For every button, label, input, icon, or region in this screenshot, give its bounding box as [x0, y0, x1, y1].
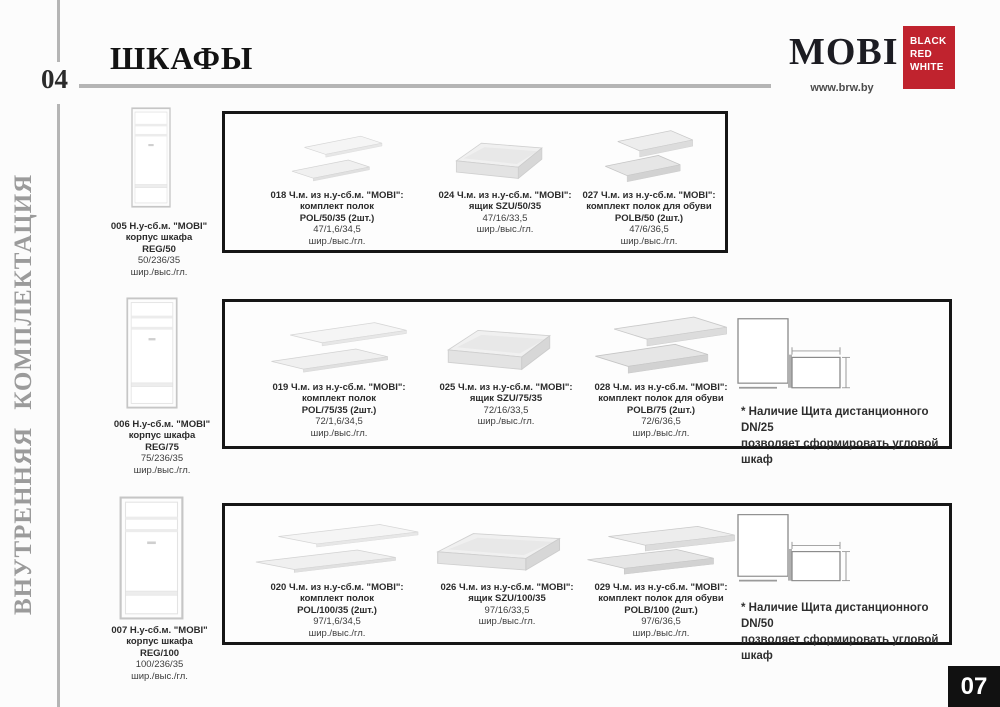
item-code: 025 Ч.м. из н.у-сб.м. "MOBI": — [439, 382, 572, 393]
item-026: 026 Ч.м. из н.у-сб.м. "MOBI": ящик SZU/1… — [421, 510, 593, 628]
item-code: 006 Н.у-сб.м. "MOBI" — [102, 419, 222, 430]
item-model: REG/75 — [102, 442, 222, 453]
item-model: POLB/50 (2шт.) — [582, 213, 715, 224]
corner-note-line2: позволяет сформировать угловой шкаф — [741, 436, 951, 468]
wardrobe-figure-reg75 — [126, 297, 178, 409]
item-dims-label: шир./выс./гл. — [270, 628, 403, 639]
item-024: 024 Ч.м. из н.у-сб.м. "MOBI": ящик SZU/5… — [421, 118, 589, 236]
wardrobe-figure-reg100 — [119, 496, 184, 620]
corner-note: * Наличие Щита дистанционного DN/50 позв… — [741, 600, 961, 664]
accessory-group-reg100: 020 Ч.м. из н.у-сб.м. "MOBI": комплект п… — [222, 503, 952, 645]
drawer-icon — [436, 310, 576, 380]
item-model: POL/75/35 (2шт.) — [272, 405, 405, 416]
item-model: REG/50 — [100, 244, 218, 255]
item-name: комплект полок — [270, 201, 403, 212]
item-dims: 50/236/35 — [100, 255, 218, 266]
item-dims: 47/16/33,5 — [438, 213, 571, 224]
page-number-left: 04 — [41, 64, 68, 95]
item-dims: 75/236/35 — [102, 453, 222, 464]
item-model: POLB/100 (2шт.) — [594, 605, 727, 616]
sidebar-vertical-label: ВНУТРЕННЯЯ КОМПЛЕКТАЦИЯ — [10, 165, 38, 615]
item-029: 029 Ч.м. из н.у-сб.м. "MOBI": комплект п… — [577, 510, 745, 639]
item-code: 027 Ч.м. из н.у-сб.м. "MOBI": — [582, 190, 715, 201]
item-dims-label: шир./выс./гл. — [438, 224, 571, 235]
brw-logo-line: WHITE — [910, 61, 955, 74]
left-rule-top — [57, 0, 60, 62]
item-019: 019 Ч.м. из н.у-сб.м. "MOBI": комплект п… — [253, 310, 425, 439]
accessory-group-reg75: 019 Ч.м. из н.у-сб.м. "MOBI": комплект п… — [222, 299, 952, 449]
item-dims-label: шир./выс./гл. — [100, 267, 218, 278]
item-model: REG/100 — [97, 648, 222, 659]
corner-note-line1: * Наличие Щита дистанционного DN/25 — [741, 404, 951, 436]
wardrobe-figure-reg50 — [131, 107, 171, 208]
catalog-page: 04 ШКАФЫ ВНУТРЕННЯЯ КОМПЛЕКТАЦИЯ MOBI ww… — [0, 0, 1000, 707]
item-dims: 47/1,6/34,5 — [270, 224, 403, 235]
item-dims-label: шир./выс./гл. — [594, 428, 727, 439]
item-code: 007 Н.у-сб.м. "MOBI" — [97, 625, 222, 636]
shelves-icon — [264, 310, 414, 380]
wardrobe-label-006: 006 Н.у-сб.м. "MOBI" корпус шкафа REG/75… — [102, 419, 222, 476]
item-label: 024 Ч.м. из н.у-сб.м. "MOBI": ящик SZU/5… — [438, 190, 571, 236]
item-code: 029 Ч.м. из н.у-сб.м. "MOBI": — [594, 582, 727, 593]
item-dims-label: шир./выс./гл. — [594, 628, 727, 639]
item-label: 018 Ч.м. из н.у-сб.м. "MOBI": комплект п… — [270, 190, 403, 247]
left-rule-bottom — [57, 104, 60, 707]
brw-logo-line: RED — [910, 48, 955, 61]
item-name: комплект полок для обуви — [582, 201, 715, 212]
corner-wardrobe-diagram — [733, 512, 873, 600]
item-025: 025 Ч.м. из н.у-сб.м. "MOBI": ящик SZU/7… — [421, 310, 591, 428]
corner-wardrobe-diagram — [733, 316, 873, 408]
item-dims: 72/16/33,5 — [439, 405, 572, 416]
shoe-shelves-icon — [599, 118, 699, 188]
corner-note-line2: позволяет сформировать угловой шкаф — [741, 632, 961, 664]
shoe-shelves-icon — [586, 310, 736, 380]
item-dims-label: шир./выс./гл. — [272, 428, 405, 439]
item-name: корпус шкафа — [100, 232, 218, 243]
item-code: 005 Н.у-сб.м. "MOBI" — [100, 221, 218, 232]
item-label: 026 Ч.м. из н.у-сб.м. "MOBI": ящик SZU/1… — [440, 582, 573, 628]
item-label: 029 Ч.м. из н.у-сб.м. "MOBI": комплект п… — [594, 582, 727, 639]
brand-website: www.brw.by — [789, 82, 895, 94]
brw-logo: BLACK RED WHITE — [903, 26, 955, 89]
item-code: 028 Ч.м. из н.у-сб.м. "MOBI": — [594, 382, 727, 393]
item-dims: 97/1,6/34,5 — [270, 616, 403, 627]
item-dims: 72/6/36,5 — [594, 416, 727, 427]
item-name: комплект полок — [272, 393, 405, 404]
item-name: комплект полок для обуви — [594, 593, 727, 604]
item-name: комплект полок — [270, 593, 403, 604]
item-name: комплект полок для обуви — [594, 393, 727, 404]
item-dims: 97/16/33,5 — [440, 605, 573, 616]
item-code: 019 Ч.м. из н.у-сб.м. "MOBI": — [272, 382, 405, 393]
item-028: 028 Ч.м. из н.у-сб.м. "MOBI": комплект п… — [577, 310, 745, 439]
item-name: ящик SZU/75/35 — [439, 393, 572, 404]
page-number-right: 07 — [948, 666, 1000, 707]
item-label: 027 Ч.м. из н.у-сб.м. "MOBI": комплект п… — [582, 190, 715, 247]
item-label: 028 Ч.м. из н.у-сб.м. "MOBI": комплект п… — [594, 382, 727, 439]
corner-note-line1: * Наличие Щита дистанционного DN/50 — [741, 600, 961, 632]
accessory-group-reg50: 018 Ч.м. из н.у-сб.м. "MOBI": комплект п… — [222, 111, 728, 253]
item-dims-label: шир./выс./гл. — [439, 416, 572, 427]
page-title: ШКАФЫ — [110, 40, 253, 77]
item-dims: 72/1,6/34,5 — [272, 416, 405, 427]
corner-note: * Наличие Щита дистанционного DN/25 позв… — [741, 404, 951, 468]
item-code: 026 Ч.м. из н.у-сб.м. "MOBI": — [440, 582, 573, 593]
item-code: 020 Ч.м. из н.у-сб.м. "MOBI": — [270, 582, 403, 593]
item-dims: 97/6/36,5 — [594, 616, 727, 627]
item-model: POL/50/35 (2шт.) — [270, 213, 403, 224]
item-label: 020 Ч.м. из н.у-сб.м. "MOBI": комплект п… — [270, 582, 403, 639]
item-027: 027 Ч.м. из н.у-сб.м. "MOBI": комплект п… — [573, 118, 725, 247]
item-dims: 47/6/36,5 — [582, 224, 715, 235]
item-dims-label: шир./выс./гл. — [582, 236, 715, 247]
brw-logo-line: BLACK — [910, 35, 955, 48]
shelves-icon — [247, 510, 427, 580]
item-model: POL/100/35 (2шт.) — [270, 605, 403, 616]
item-018: 018 Ч.м. из н.у-сб.м. "MOBI": комплект п… — [253, 118, 421, 247]
item-dims: 100/236/35 — [97, 659, 222, 670]
item-name: корпус шкафа — [97, 636, 222, 647]
item-name: корпус шкафа — [102, 430, 222, 441]
item-dims-label: шир./выс./гл. — [97, 671, 222, 682]
drawer-icon — [423, 510, 591, 580]
item-label: 019 Ч.м. из н.у-сб.м. "MOBI": комплект п… — [272, 382, 405, 439]
wardrobe-label-005: 005 Н.у-сб.м. "MOBI" корпус шкафа REG/50… — [100, 221, 218, 278]
drawer-icon — [446, 118, 564, 188]
wardrobe-label-007: 007 Н.у-сб.м. "MOBI" корпус шкафа REG/10… — [97, 625, 222, 682]
item-dims-label: шир./выс./гл. — [102, 465, 222, 476]
item-model: POLB/75 (2шт.) — [594, 405, 727, 416]
item-dims-label: шир./выс./гл. — [270, 236, 403, 247]
item-name: ящик SZU/50/35 — [438, 201, 571, 212]
item-code: 018 Ч.м. из н.у-сб.м. "MOBI": — [270, 190, 403, 201]
shoe-shelves-icon — [577, 510, 745, 580]
item-code: 024 Ч.м. из н.у-сб.м. "MOBI": — [438, 190, 571, 201]
item-label: 025 Ч.м. из н.у-сб.м. "MOBI": ящик SZU/7… — [439, 382, 572, 428]
title-rule — [79, 84, 771, 88]
item-dims-label: шир./выс./гл. — [440, 616, 573, 627]
brand-logo-text: MOBI — [789, 30, 895, 74]
shelves-icon — [287, 118, 387, 188]
item-name: ящик SZU/100/35 — [440, 593, 573, 604]
item-020: 020 Ч.м. из н.у-сб.м. "MOBI": комплект п… — [247, 510, 427, 639]
